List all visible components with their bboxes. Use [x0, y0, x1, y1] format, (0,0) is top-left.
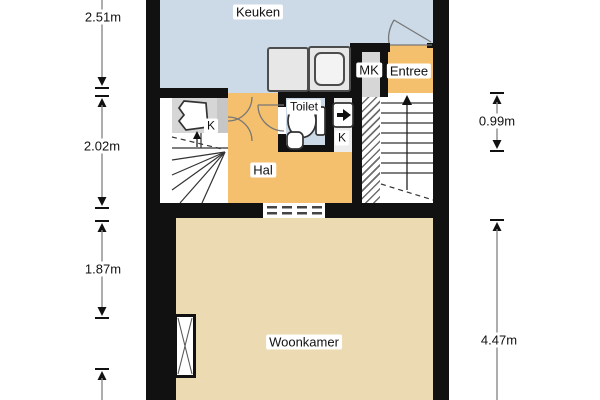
room-label-toilet: Toilet — [287, 100, 321, 115]
room-label-closet-right: K — [335, 131, 349, 146]
dimension-label-right-bottom: 4.47m — [478, 333, 520, 348]
room-label-closet-left: K — [204, 119, 218, 134]
dimension-label-left-middle: 2.02m — [81, 139, 123, 154]
dimension-label-left-top: 2.51m — [82, 10, 124, 25]
room-label-entree: Entree — [387, 64, 431, 79]
window-glazing-icon — [178, 318, 192, 374]
room-label-woonkamer: Woonkamer — [266, 335, 342, 350]
closet-doors-icon — [228, 97, 252, 141]
toilet-sink-icon — [287, 132, 303, 149]
floorplan: Keuken MK Entree Toilet K K Hal Woonkame… — [0, 0, 600, 400]
dimension-line-right — [490, 93, 504, 400]
room-label-keuken: Keuken — [233, 5, 283, 20]
dimension-line-left — [95, 0, 109, 400]
entree-door-icon — [389, 20, 432, 45]
dimension-label-left-lower: 1.87m — [82, 262, 124, 277]
toilet-door-icon — [258, 105, 284, 131]
room-label-mk: MK — [356, 63, 382, 78]
boiler-icon — [333, 103, 353, 127]
opening-threshold-marks — [267, 206, 322, 215]
room-label-hal: Hal — [250, 163, 276, 178]
stairs-right-icon — [381, 95, 433, 200]
dimension-label-right-top: 0.99m — [476, 114, 518, 129]
stairs-left-icon — [172, 131, 228, 203]
